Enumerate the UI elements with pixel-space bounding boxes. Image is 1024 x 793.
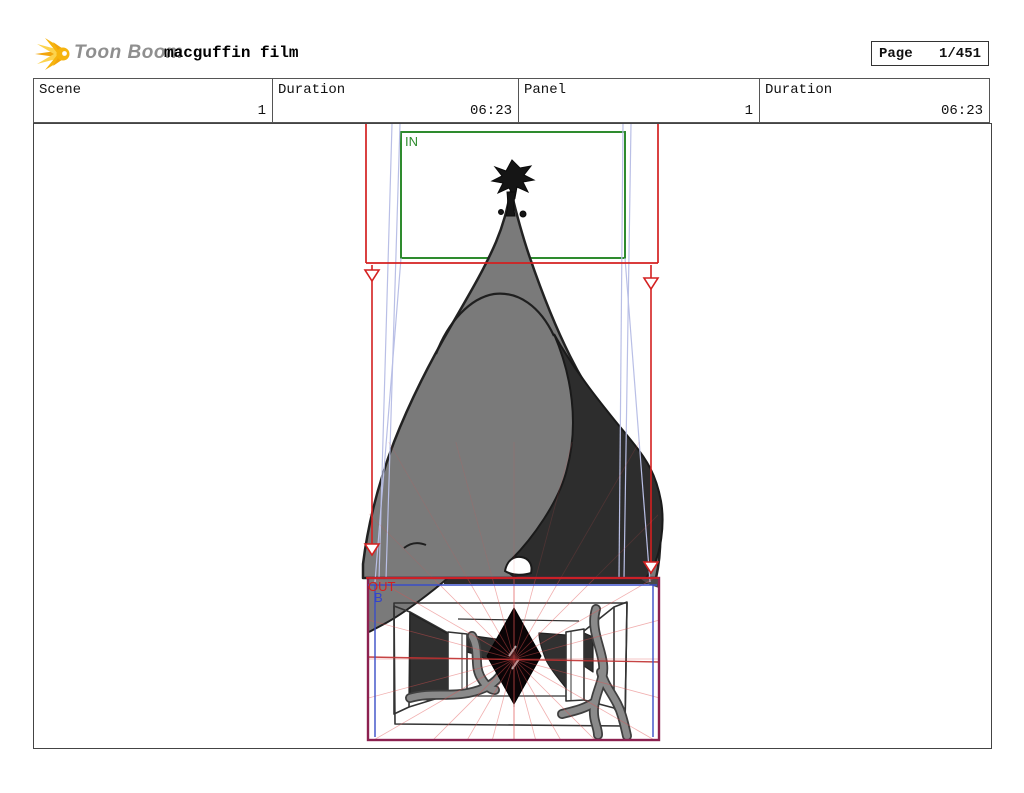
mountain-silhouette	[363, 160, 663, 632]
panel-value: 1	[745, 103, 753, 119]
panel-label: Panel	[524, 82, 566, 98]
storyboard-panel: IN	[33, 123, 992, 749]
scene-cell: Scene 1	[34, 79, 273, 122]
duration-value: 06:23	[470, 103, 512, 119]
scene-duration-cell: Duration 06:23	[273, 79, 519, 122]
duration2-label: Duration	[765, 82, 832, 98]
camera-in-label: IN	[405, 134, 418, 149]
arrowhead-right-top	[644, 278, 658, 289]
arrowhead-left-top	[365, 270, 379, 281]
page-indicator: Page 1/451	[871, 41, 989, 66]
duration2-value: 06:23	[941, 103, 983, 119]
storyboard-page: Toon Boom macguffin film Page 1/451 Scen…	[0, 0, 1024, 793]
tree-icon	[492, 160, 534, 217]
camera-out-label: OUT	[368, 579, 396, 594]
project-title: macguffin film	[164, 44, 298, 62]
dark-curtain-left	[410, 613, 448, 700]
scene-label: Scene	[39, 82, 81, 98]
scene-value: 1	[258, 103, 266, 119]
panel-duration-cell: Duration 06:23	[760, 79, 989, 122]
toonboom-starburst-icon	[33, 36, 73, 72]
panel-cell: Panel 1	[519, 79, 760, 122]
duration-label: Duration	[278, 82, 345, 98]
page-number: 1/451	[939, 46, 981, 62]
page-label: Page	[879, 46, 913, 62]
panel-info-table: Scene 1 Duration 06:23 Panel 1 Duration …	[33, 78, 990, 123]
storyboard-drawing: IN	[34, 124, 991, 748]
